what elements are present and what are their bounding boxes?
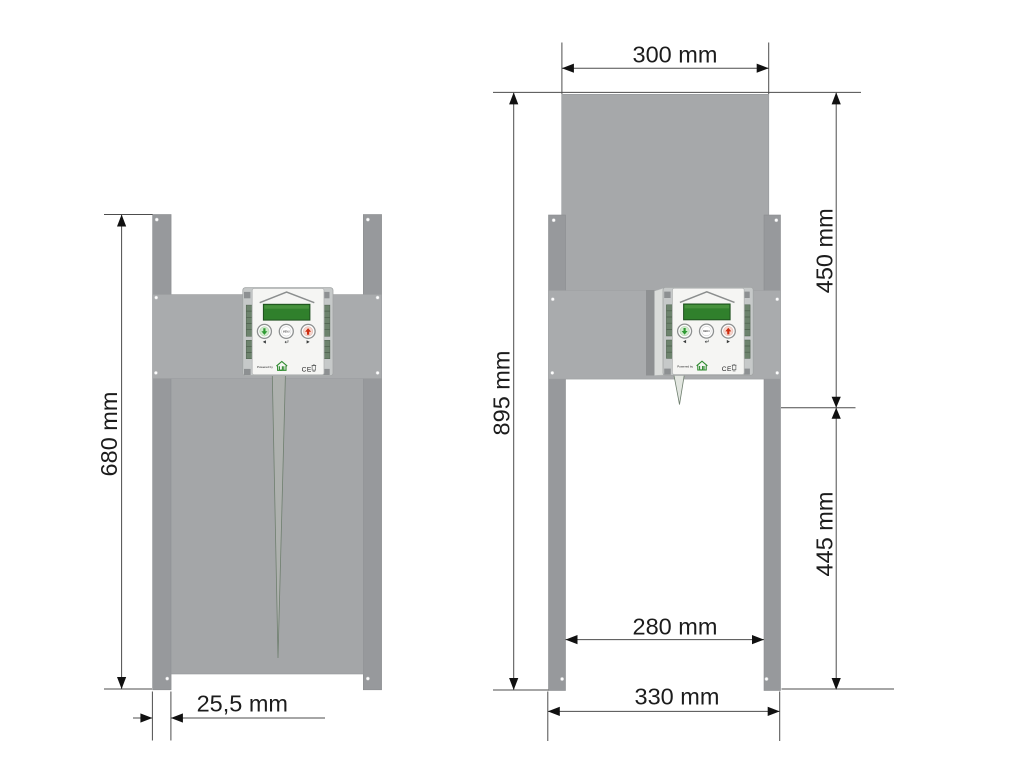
svg-text:25,5 mm: 25,5 mm: [197, 691, 288, 717]
svg-text:680 mm: 680 mm: [96, 392, 122, 477]
svg-text:330 mm: 330 mm: [635, 684, 720, 710]
svg-text:895 mm: 895 mm: [488, 351, 514, 436]
svg-text:450 mm: 450 mm: [811, 208, 837, 293]
svg-text:280 mm: 280 mm: [633, 614, 718, 640]
svg-text:445 mm: 445 mm: [811, 492, 837, 577]
svg-text:300 mm: 300 mm: [633, 42, 718, 68]
